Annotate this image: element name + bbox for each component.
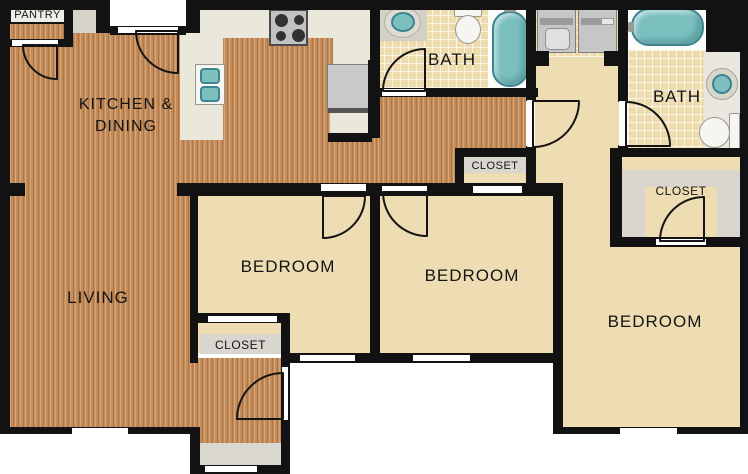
wall — [186, 0, 200, 33]
wall — [533, 51, 549, 66]
kitchen-nook — [330, 113, 368, 133]
closet-hall-door-opening — [473, 186, 522, 193]
bedroom-left-window-opening — [300, 355, 355, 361]
refrigerator-icon — [327, 64, 369, 110]
wall — [527, 148, 535, 192]
bath-hall-sink-basin — [391, 12, 415, 32]
pantry-label: PANTRY — [14, 9, 61, 21]
wall — [0, 183, 25, 196]
wall — [455, 148, 535, 157]
kitchen-dining-label-line1: KITCHEN & — [56, 95, 196, 114]
wall — [96, 0, 110, 33]
wall — [553, 183, 563, 433]
bedroom-right-upper-floor — [563, 148, 610, 247]
bath-master-label: BATH — [633, 87, 721, 106]
floor-plan: PANTRY KITCHEN & DINING LIVING BATH BATH… — [0, 0, 748, 474]
closet-master-shelf-right — [717, 170, 740, 237]
dryer-icon — [578, 9, 617, 53]
entry-mat — [200, 443, 281, 466]
bedroom-left-label: BEDROOM — [213, 257, 363, 276]
bath-master-toilet-icon — [699, 117, 730, 148]
hallway-door-opening — [527, 100, 535, 147]
living-window-opening — [72, 428, 128, 434]
kitchen-dining-label-line2: DINING — [56, 117, 196, 136]
bath-master-door-opening — [619, 101, 627, 146]
wall — [328, 133, 372, 142]
wall — [190, 196, 198, 363]
living-label: LIVING — [38, 288, 158, 307]
wall — [610, 148, 748, 157]
pantry-floor — [8, 22, 66, 40]
patio-door-opening — [118, 27, 178, 33]
entry-front-door-opening — [205, 466, 257, 472]
bath-master-tub-icon — [631, 8, 704, 46]
bath-hall-door-opening — [382, 89, 426, 96]
closet-entry-label: CLOSET — [198, 338, 283, 352]
closet-master-door-opening — [656, 239, 706, 245]
wall — [0, 0, 10, 433]
kitchen-counter-fridge — [333, 36, 370, 66]
wall — [0, 0, 105, 10]
kitchen-sink-icon — [195, 64, 225, 105]
bedroom-left-door-opening — [321, 184, 366, 191]
living-kitchen-floor — [8, 10, 192, 427]
closet-hall-label: CLOSET — [461, 159, 529, 173]
bath-hall-tub-icon — [492, 11, 528, 87]
bedroom-right-window-opening — [620, 428, 677, 434]
washer-icon — [537, 9, 576, 53]
bath-hall-label: BATH — [408, 50, 496, 69]
wall — [740, 0, 748, 433]
patio-recess — [110, 0, 186, 26]
bedroom-right-floor — [563, 247, 740, 427]
bedroom-middle-window-opening — [413, 355, 470, 361]
bath-hall-toilet-icon — [455, 15, 481, 44]
wall — [610, 148, 622, 247]
wall — [196, 0, 748, 10]
bedroom-middle-label: BEDROOM — [397, 266, 547, 285]
wall — [370, 183, 380, 363]
wall — [370, 0, 380, 62]
closet-entry-door-opening — [208, 316, 277, 322]
bedroom-middle-door-opening — [382, 186, 427, 193]
closet-master-label: CLOSET — [639, 184, 723, 198]
wall — [618, 0, 628, 102]
closet-master-shelf-left — [622, 170, 645, 237]
stove-icon — [269, 9, 308, 46]
bedroom-right-label: BEDROOM — [580, 312, 730, 331]
bath-master-tub-faucet — [628, 22, 634, 32]
bath-master-toilet-tank — [729, 113, 740, 150]
pantry-door-opening — [12, 40, 58, 46]
entry-side-door-opening — [282, 367, 288, 420]
wall — [368, 60, 380, 138]
